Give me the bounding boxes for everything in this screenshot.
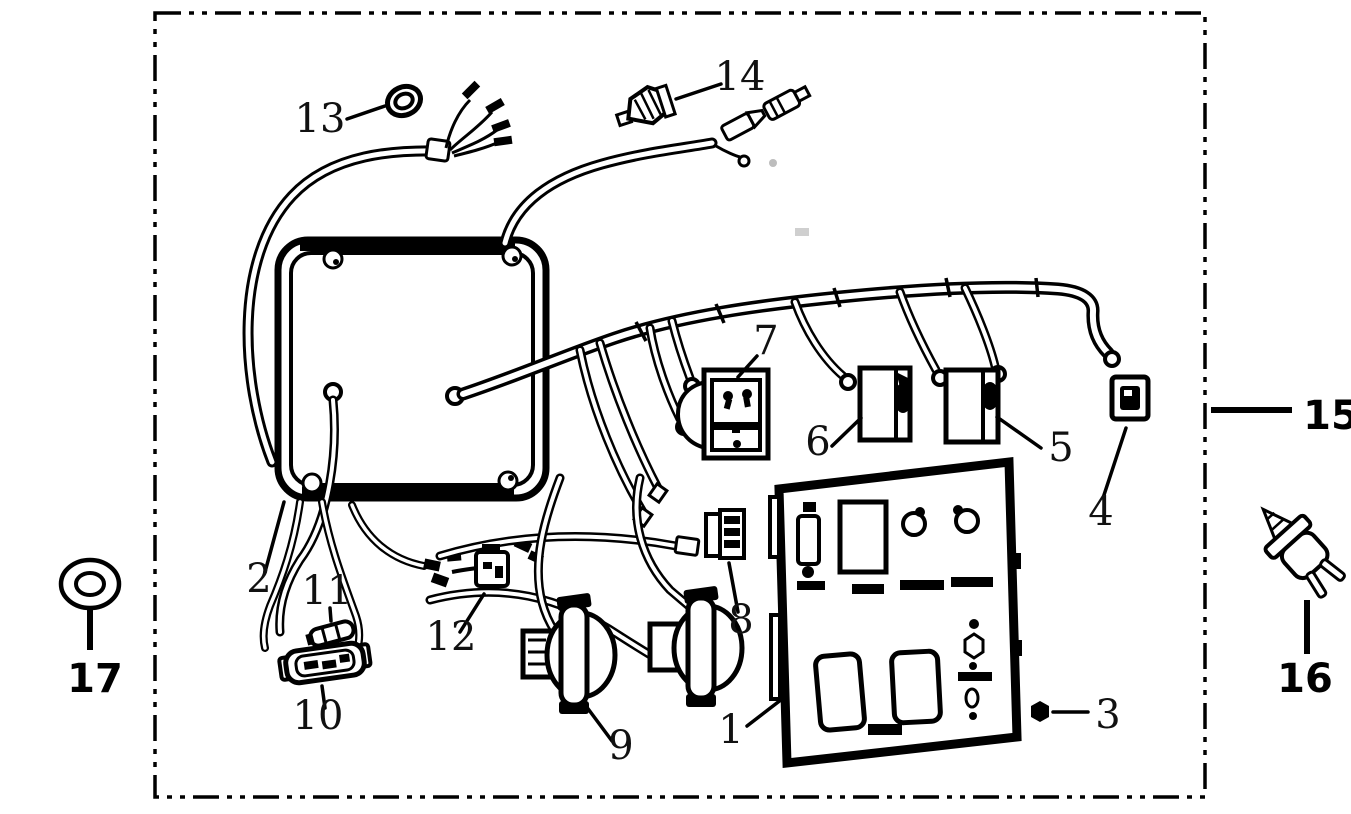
callout-15: 15 xyxy=(1303,393,1351,439)
part-1-control-panel xyxy=(770,462,1022,763)
part-5-relay xyxy=(946,370,999,442)
part-17-washer xyxy=(61,560,119,608)
callout-5: 5 xyxy=(1048,425,1073,471)
callout-1: 1 xyxy=(718,707,743,753)
part-6-relay xyxy=(860,368,912,440)
part-12-clip xyxy=(476,544,508,586)
part-16-plug xyxy=(1244,492,1351,605)
part-10-fuse-holder xyxy=(278,641,372,685)
callout-2: 2 xyxy=(246,556,271,602)
part-14-connector xyxy=(611,82,675,134)
parts-diagram-page: 1 2 3 4 5 6 7 8 9 10 11 12 13 14 15 16 1… xyxy=(0,0,1351,814)
part-9-clamp-left xyxy=(523,593,615,714)
spade-terminal-cluster xyxy=(446,81,512,156)
callout-14: 14 xyxy=(715,54,766,100)
wire-to-connectors-14 xyxy=(505,143,749,243)
callout-9: 9 xyxy=(608,723,633,769)
callout-13: 13 xyxy=(295,96,346,142)
print-smudge xyxy=(769,159,777,167)
callout-8: 8 xyxy=(728,597,753,643)
callout-17: 17 xyxy=(67,656,123,702)
print-smudge-2 xyxy=(795,228,809,236)
part-4-switch xyxy=(1112,377,1148,419)
harness-end-connectors xyxy=(721,83,812,236)
part-2-frame-box xyxy=(278,238,546,498)
panel-toggle-switch xyxy=(798,516,819,564)
callout-6: 6 xyxy=(805,419,830,465)
callout-16: 16 xyxy=(1277,656,1333,702)
panel-label-smudge xyxy=(900,580,944,590)
wiring-harness-exploded-diagram: 1 2 3 4 5 6 7 8 9 10 11 12 13 14 15 16 1… xyxy=(0,0,1351,814)
panel-outlet-2 xyxy=(891,651,941,723)
callout-7: 7 xyxy=(753,318,778,364)
panel-outlet-1 xyxy=(815,653,865,731)
panel-label-smudge xyxy=(797,581,825,590)
part-13-grommet xyxy=(383,81,426,121)
panel-meter xyxy=(840,502,886,572)
callout-4: 4 xyxy=(1088,489,1113,535)
panel-label-smudge xyxy=(868,724,902,735)
part-8-connector xyxy=(706,510,744,558)
callout-3: 3 xyxy=(1095,692,1120,738)
callout-11: 11 xyxy=(302,568,353,614)
panel-label-smudge xyxy=(951,577,993,587)
part-3-bolt xyxy=(1031,701,1049,722)
callout-10: 10 xyxy=(293,693,344,739)
panel-label-smudge xyxy=(852,584,884,594)
panel-indicator xyxy=(803,502,816,512)
callout-12: 12 xyxy=(426,614,477,660)
